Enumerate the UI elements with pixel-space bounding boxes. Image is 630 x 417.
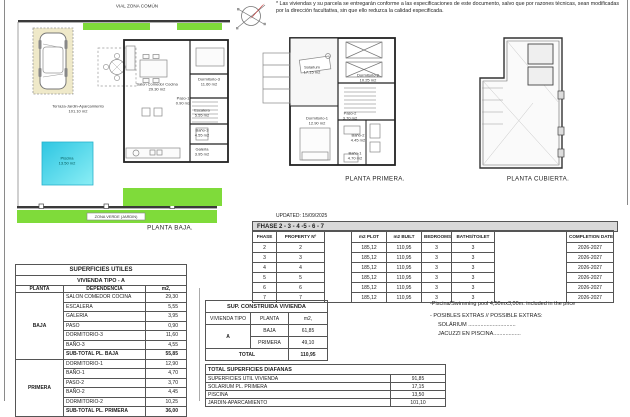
- garden-right: [123, 188, 222, 206]
- terraza-label: Terraza-Jardin-Aparcamiento101.10 m2: [52, 104, 104, 113]
- room-escalera-label: Escalera5.55 m2: [194, 108, 210, 117]
- phase-spacer-2: [495, 231, 567, 303]
- diafanas-row: JARDIN-APARCAMIENTO101,10: [206, 399, 446, 407]
- street-label: VIAL ZONA COMÚN: [116, 3, 158, 8]
- street-edge: [18, 20, 230, 22]
- planta-cubierta-caption: PLANTA CUBIERTA.: [507, 175, 569, 182]
- utiles-row: PRIMERA DORMITORIO-112,90: [16, 359, 187, 369]
- zona-verde-label: ZONA VERDE (JARDIN): [95, 214, 138, 218]
- note-extra-solarium: SOLÁRIUM ...............................: [438, 322, 628, 328]
- planta-baja-group-label: BAJA: [16, 293, 64, 360]
- pergola-slats: [263, 53, 290, 103]
- construida-title: SUP. CONSTRUIDA VIVIENDA: [206, 301, 328, 313]
- phase-table: FHASE PROPERTY Nº m2 PLOT m2 BUILT BEDRO…: [252, 230, 614, 303]
- planta-baja-caption: PLANTA BAJA.: [147, 224, 193, 231]
- stairs-primera: [344, 88, 376, 112]
- utiles-col-dependencia: DEPENDENCIA: [64, 286, 146, 293]
- plan-planta-cubierta: PLANTA CUBIERTA.: [478, 28, 630, 188]
- construida-col-planta: PLANTA: [251, 313, 289, 325]
- utiles-row: BAJA SALON COMEDOR COCINA29,30: [16, 293, 187, 303]
- phase-spacer-1: [325, 231, 352, 303]
- car-icon: [39, 33, 68, 89]
- superficies-utiles-table: SUPERFICIES UTILES VIVIENDA TIPO - A PLA…: [15, 264, 187, 417]
- utiles-col-planta: PLANTA: [16, 286, 64, 293]
- construida-col-m2: m2,: [289, 313, 328, 325]
- note-extra-jacuzzi: JACUZZI EN PISCINA..................: [438, 331, 628, 337]
- notes-block: -Piscina/Swimming pool 4,50mx3,00m. incl…: [430, 301, 628, 340]
- piscina-label: Piscina13.50 m2: [59, 156, 76, 165]
- green-strip-top-right: [177, 23, 222, 30]
- col-plot: m2 PLOT: [352, 231, 387, 243]
- room-dormitorio2-label: Dormitorio-210.25 m2: [357, 73, 379, 82]
- construida-col-tipo: VIVIENDA TIPO: [206, 313, 251, 325]
- disclaimer-text: * Las viviendas y su parcela se entregar…: [276, 1, 626, 15]
- room-bano3-label: Baño-34.55 m2: [195, 128, 209, 137]
- planta-cubierta-drawing: [478, 28, 630, 188]
- room-bano2-label: Baño-24.45 m2: [351, 133, 365, 142]
- utiles-col-m2: m2,: [146, 286, 187, 293]
- room-dormitorio3-label: Dormitorio-311.60 m2: [198, 77, 220, 86]
- note-extras-title: - POSIBLES EXTRAS // POSSIBLE EXTRAS:: [430, 313, 628, 319]
- planta-primera-caption: PLANTA PRIMERA.: [345, 175, 404, 182]
- planta-primera-drawing: [258, 28, 454, 188]
- col-property: PROPERTY Nº: [277, 231, 325, 243]
- section-divider: [199, 288, 200, 401]
- room-salon-label: Salon Comedor Cocina29.30 m2: [136, 82, 177, 91]
- parking-spot: [33, 28, 73, 94]
- col-bedrooms: BEDROOMS: [422, 231, 452, 243]
- col-completion: COMPLETION DATE: [567, 231, 614, 243]
- construida-total-row: TOTAL 110,95: [206, 349, 328, 361]
- diafanas-row: PISCINA13,50: [206, 391, 446, 399]
- construida-row: A BAJA61,85: [206, 325, 328, 337]
- diafanas-title: TOTAL SUPERFICIES DIAFANAS: [206, 365, 446, 375]
- room-dormitorio1-label: Dormitorio-112.90 m2: [306, 116, 328, 125]
- room-bano1-label: Baño-14.70 m2: [348, 151, 362, 160]
- sup-construida-table: SUP. CONSTRUIDA VIVIENDA VIVIENDA TIPO P…: [205, 300, 328, 361]
- plot-bottom-edge: [17, 206, 217, 208]
- diafanas-row: SUPERFICIES UTIL VIVIENDA91,85: [206, 375, 446, 383]
- note-pool: -Piscina/Swimming pool 4,50mx3,00m. incl…: [430, 301, 628, 307]
- room-paso1-label: Paso-10.90 m2: [176, 96, 190, 105]
- room-galeria-label: Galeria3.95 m2: [195, 147, 209, 156]
- bed-and-fixtures: [300, 124, 380, 162]
- room-paso2-label: Paso-23.70 m2: [343, 111, 357, 120]
- col-phase: FHASE: [253, 231, 277, 243]
- green-strip-top-left: [83, 23, 150, 30]
- plan-planta-primera: Solarium17.15 m2 Dormitorio-210.25 m2 Pa…: [258, 28, 454, 188]
- col-built: m2 BUILT: [387, 231, 422, 243]
- plan-planta-baja: VIAL ZONA COMÚN Terraza-Jardin-Aparcamie…: [12, 2, 234, 254]
- room-solarium-label: Solarium17.15 m2: [304, 65, 321, 74]
- updated-date: UPDATED: 15/09/2025: [276, 213, 327, 219]
- col-baths: BATHS/TOILET: [452, 231, 495, 243]
- planta-primera-group-label: PRIMERA: [16, 359, 64, 416]
- utiles-subtitle: VIVIENDA TIPO - A: [16, 276, 187, 286]
- vivienda-tipo-a: A: [206, 325, 251, 349]
- diafanas-row: SOLARIUM PL. PRIMERA17,15: [206, 383, 446, 391]
- page-left-border: [4, 0, 5, 401]
- utiles-title: SUPERFICIES UTILES: [16, 265, 187, 276]
